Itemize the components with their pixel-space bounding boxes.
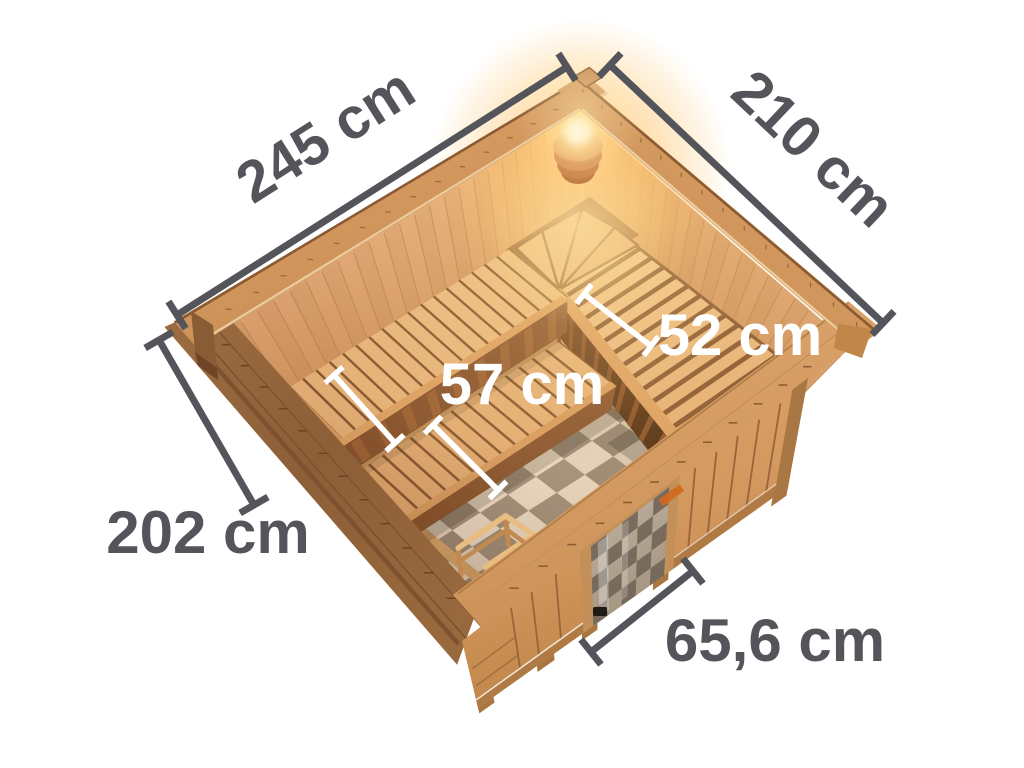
- svg-text:65,6 cm: 65,6 cm: [665, 607, 885, 674]
- svg-text:52 cm: 52 cm: [658, 303, 822, 368]
- svg-text:202 cm: 202 cm: [106, 499, 310, 566]
- svg-text:57 cm: 57 cm: [440, 352, 604, 417]
- svg-text:210 cm: 210 cm: [720, 58, 908, 240]
